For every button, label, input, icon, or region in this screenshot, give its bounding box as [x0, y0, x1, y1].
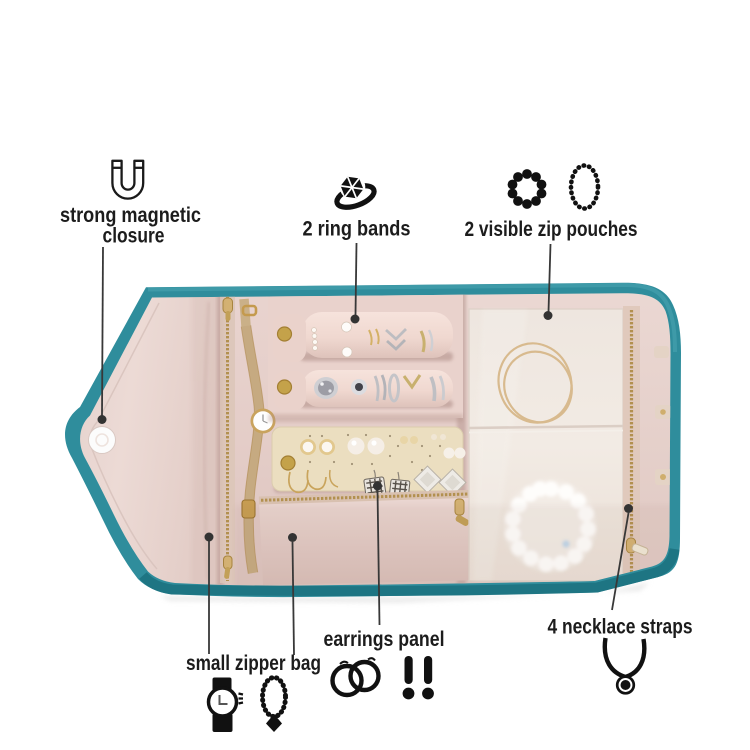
svg-text:closure: closure — [103, 225, 165, 248]
svg-text:earrings panel: earrings panel — [324, 628, 445, 651]
svg-text:small zipper bag: small zipper bag — [186, 652, 321, 675]
svg-text:4 necklace straps: 4 necklace straps — [548, 616, 693, 639]
svg-text:2 ring bands: 2 ring bands — [303, 218, 411, 241]
svg-text:2 visible zip pouches: 2 visible zip pouches — [465, 218, 638, 241]
